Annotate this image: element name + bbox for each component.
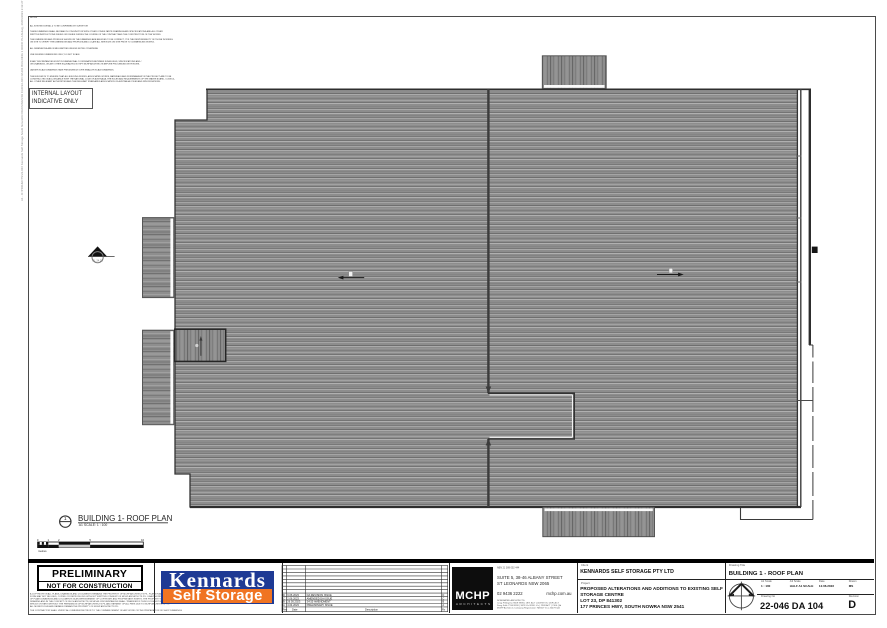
svg-text:10: 10 [141,538,145,542]
svg-text:C: C [442,596,444,600]
svg-text:PRELIMINARY ISSUE: PRELIMINARY ISSUE [307,603,333,607]
svg-text:C: C [283,596,285,600]
svg-text:Rev: Rev [283,608,288,612]
svg-text:B: B [442,600,444,604]
svg-text:2.06.2023: 2.06.2023 [287,596,299,600]
svg-text:9.06.2023: 9.06.2023 [287,593,299,597]
svg-text:0: 0 [37,538,39,542]
svg-text:B: B [283,600,285,604]
svg-text:A1 SCALE: 1 : 100: A1 SCALE: 1 : 100 [79,523,108,527]
svg-text:Description: Description [365,608,379,612]
svg-text:DA REVISION ISSUE: DA REVISION ISSUE [307,593,332,597]
svg-text:RL 24.26: RL 24.26 [92,259,103,263]
svg-text:5: 5 [89,538,91,542]
svg-text:BUILDING 1- ROOF PLAN: BUILDING 1- ROOF PLAN [78,514,173,523]
svg-text:metres: metres [38,549,47,553]
svg-text:1: 1 [48,538,50,542]
svg-text:S4.55 AMENDMENT: S4.55 AMENDMENT [307,600,331,604]
svg-text:AMENDED DA ISSUE: AMENDED DA ISSUE [307,596,333,600]
svg-text:26.05.2023: 26.05.2023 [287,600,301,604]
svg-text:Rv: Rv [442,608,446,612]
svg-text:D: D [442,593,444,597]
svg-text:4.04.2023: 4.04.2023 [287,603,299,607]
svg-text:Date: Date [292,608,298,612]
svg-text:A: A [283,603,285,607]
svg-text:A: A [442,603,444,607]
svg-text:1: 1 [64,516,67,521]
svg-text:D: D [283,593,285,597]
svg-text:2: 2 [58,538,60,542]
svg-text:A1 - D:\PROJECTS\22-046 Kennar: A1 - D:\PROJECTS\22-046 Kennards Self St… [20,0,24,201]
